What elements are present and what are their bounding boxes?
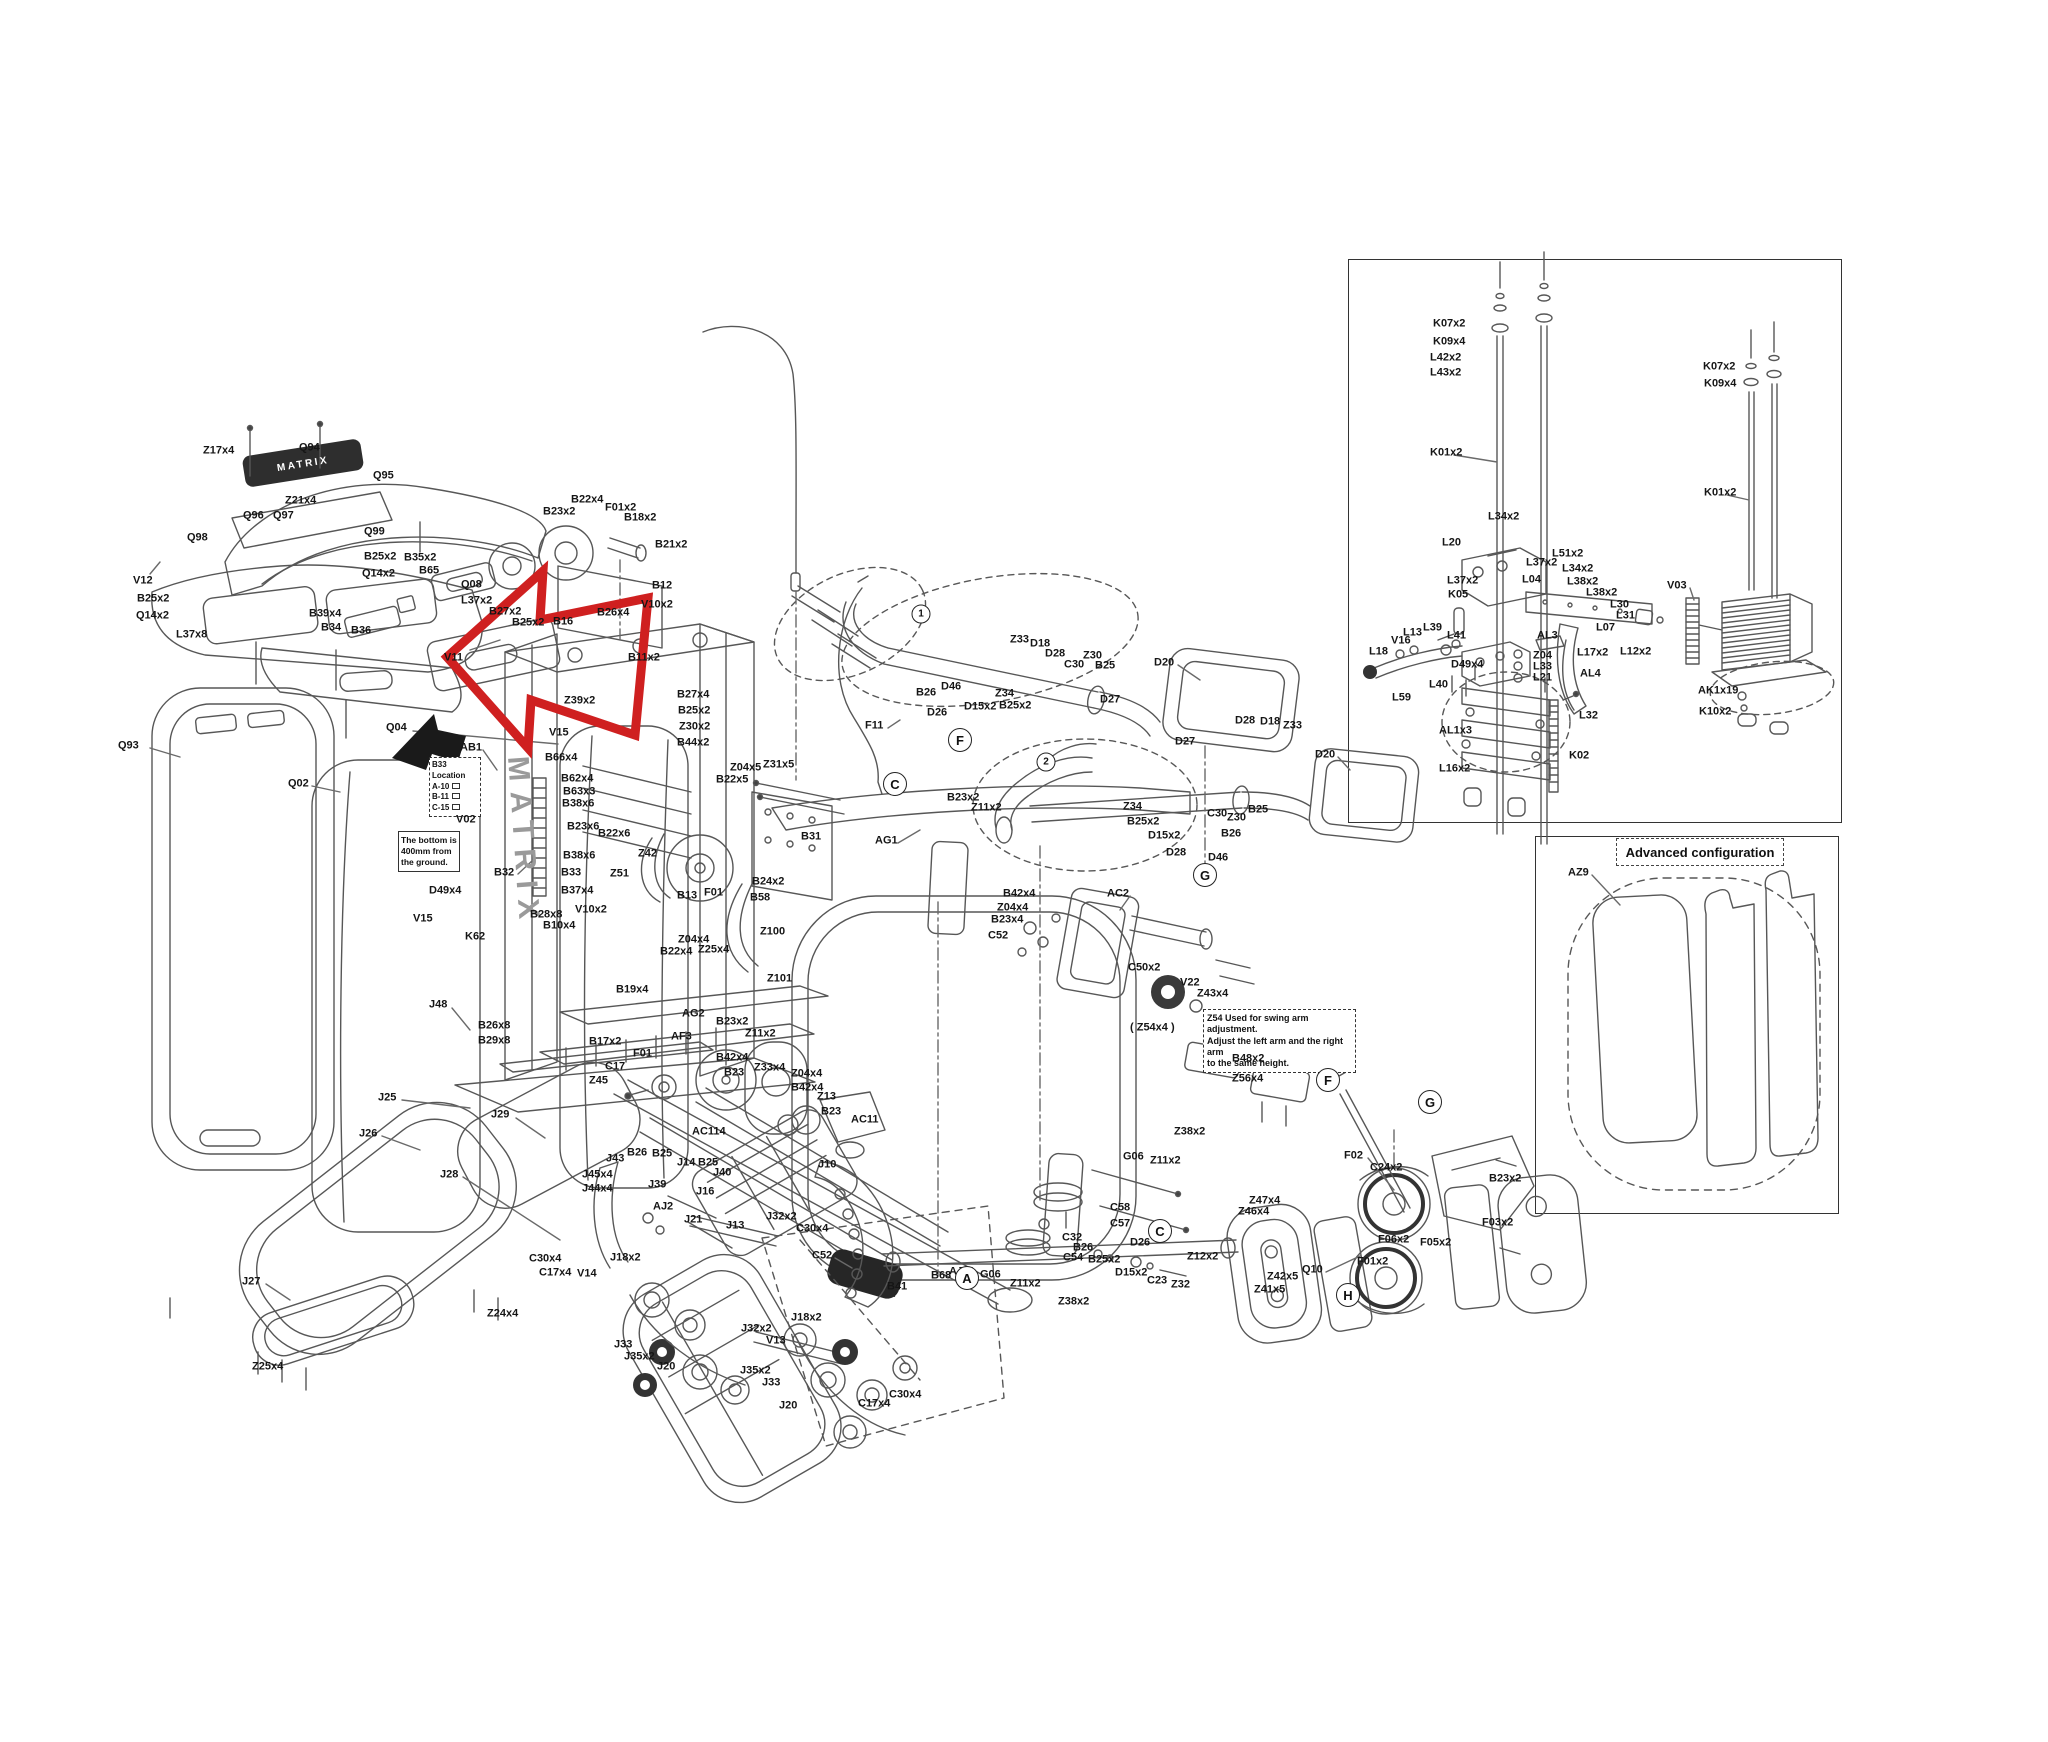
part-label: Z33x4: [754, 1063, 785, 1074]
part-label: B26: [627, 1148, 647, 1159]
part-label: D15x2: [1148, 831, 1180, 842]
part-label: L32: [1579, 711, 1598, 722]
part-label: V12: [133, 576, 153, 587]
part-label: F01: [704, 888, 723, 899]
part-label: C54: [1063, 1253, 1083, 1264]
part-label: Z42: [638, 849, 657, 860]
part-label: AL1x3: [1439, 726, 1472, 737]
part-label: Z13: [817, 1092, 836, 1103]
part-label: V02: [456, 815, 476, 826]
part-label: Z32: [1171, 1280, 1190, 1291]
part-label: L07: [1596, 623, 1615, 634]
part-label: D49x4: [1451, 660, 1483, 671]
part-label: AJ2: [653, 1202, 673, 1213]
part-label: C50x2: [1128, 963, 1160, 974]
part-label: Z17x4: [203, 446, 234, 457]
part-label: Z30x2: [679, 722, 710, 733]
part-label: Z45: [589, 1076, 608, 1087]
part-label: G06: [1123, 1152, 1144, 1163]
part-label: Q95: [373, 471, 394, 482]
part-label: Z11x2: [1010, 1279, 1041, 1290]
part-label: L40: [1429, 680, 1448, 691]
part-label: B26: [916, 688, 936, 699]
part-label: J35x2: [740, 1366, 771, 1377]
part-label: K01x2: [1704, 488, 1736, 499]
part-label: B42x4: [716, 1053, 748, 1064]
part-label: Z11x2: [745, 1029, 776, 1040]
part-label: AL4: [1580, 669, 1601, 680]
part-label: J35x2: [624, 1352, 655, 1363]
part-label: J48: [429, 1000, 447, 1011]
part-label: J18x2: [610, 1253, 641, 1264]
part-label: B37x4: [561, 886, 593, 897]
part-label: D15x2: [964, 702, 996, 713]
part-label: B23x4: [991, 915, 1023, 926]
part-label: J20: [657, 1362, 675, 1373]
part-label: K07x2: [1433, 319, 1465, 330]
section-marker: A: [955, 1266, 979, 1290]
part-label: Z34: [1123, 802, 1142, 813]
part-label: Z38x2: [1058, 1297, 1089, 1308]
part-label: B22x5: [716, 775, 748, 786]
part-label: Q04: [386, 723, 407, 734]
part-label: D20: [1154, 658, 1174, 669]
part-label: C17: [605, 1062, 625, 1073]
part-label: J20: [779, 1401, 797, 1412]
part-label: L21: [1533, 673, 1552, 684]
part-label: B25x2: [1088, 1255, 1120, 1266]
part-label: L42x2: [1430, 353, 1461, 364]
part-label: B39x4: [309, 609, 341, 620]
part-label: C57: [1110, 1219, 1130, 1230]
part-label: B22x6: [598, 829, 630, 840]
part-label: Z101: [767, 974, 792, 985]
part-label: D26: [1130, 1238, 1150, 1249]
part-label: Z100: [760, 927, 785, 938]
part-label: B26x4: [597, 608, 629, 619]
part-label: L41: [1447, 631, 1466, 642]
part-label: B33: [561, 868, 581, 879]
part-label: D28: [1235, 716, 1255, 727]
part-label: C17x4: [539, 1268, 571, 1279]
part-label: J45x4: [582, 1170, 613, 1181]
part-label: ( Z54x4 ): [1130, 1023, 1175, 1034]
part-label: L37x8: [176, 630, 207, 641]
part-label: J44x4: [582, 1184, 613, 1195]
part-label: Z04x5: [730, 763, 761, 774]
part-label: Z41x5: [1254, 1285, 1285, 1296]
part-label: Q08: [461, 580, 482, 591]
part-label: V10x2: [575, 905, 607, 916]
part-label: D20: [1315, 750, 1335, 761]
part-label: AC114: [692, 1127, 726, 1138]
part-label: J32x2: [766, 1212, 797, 1223]
part-label: AB1: [460, 743, 482, 754]
part-label: B22x4: [660, 947, 692, 958]
part-label: J43: [606, 1154, 624, 1165]
diagram-canvas: MATRIX MATRIX B33 Location A-10 B-11 C-1…: [0, 0, 2048, 1742]
part-label: C30: [1064, 660, 1084, 671]
part-label: D46: [1208, 853, 1228, 864]
part-label: B22x4: [571, 495, 603, 506]
part-label: L38x2: [1586, 588, 1617, 599]
part-label: L16x2: [1439, 764, 1470, 775]
part-label: Q14x2: [136, 611, 169, 622]
part-label: L37x2: [1447, 576, 1478, 587]
part-label: B11x2: [628, 653, 660, 664]
part-label: Z56x4: [1232, 1074, 1263, 1085]
part-label: Z12x2: [1187, 1252, 1218, 1263]
part-label: J32x2: [741, 1324, 772, 1335]
part-label: B25: [1248, 805, 1268, 816]
part-label: L37x2: [461, 596, 492, 607]
part-label: Z51: [610, 869, 629, 880]
part-label: L59: [1392, 693, 1411, 704]
part-label: B24x2: [752, 877, 784, 888]
part-label: C30x4: [889, 1390, 921, 1401]
part-label: D27: [1175, 737, 1195, 748]
part-label: J14: [677, 1158, 695, 1169]
part-label: B10x4: [543, 921, 575, 932]
section-marker: C: [1148, 1219, 1172, 1243]
part-label: B25x2: [1127, 817, 1159, 828]
part-label: F02: [1344, 1151, 1363, 1162]
part-label: AC2: [1107, 889, 1129, 900]
part-label: D28: [1166, 848, 1186, 859]
part-label: Z25x4: [698, 945, 729, 956]
part-label: B23x2: [1489, 1174, 1521, 1185]
part-label: B18x2: [624, 513, 656, 524]
part-label: C52: [812, 1251, 832, 1262]
part-label: Z42x5: [1267, 1272, 1298, 1283]
part-label: B27x4: [677, 690, 709, 701]
section-marker: 2: [1037, 753, 1056, 772]
part-label: B25: [1095, 661, 1115, 672]
part-label: L12x2: [1620, 647, 1651, 658]
part-label: B44x2: [677, 738, 709, 749]
part-label: B23: [724, 1068, 744, 1079]
part-label: L04: [1522, 575, 1541, 586]
part-label: L17x2: [1577, 648, 1608, 659]
part-label: B58: [750, 893, 770, 904]
part-label: Q02: [288, 779, 309, 790]
part-label: C30x4: [529, 1254, 561, 1265]
part-label: C58: [1110, 1203, 1130, 1214]
part-label: Q96: [243, 511, 264, 522]
part-label: Z43x4: [1197, 989, 1228, 1000]
part-label: J18x2: [791, 1313, 822, 1324]
part-label: Z31x5: [763, 760, 794, 771]
part-label: B62x4: [561, 774, 593, 785]
part-label: V11: [444, 653, 463, 664]
part-label: L31: [1616, 611, 1635, 622]
part-label: B13: [677, 891, 697, 902]
part-label: J33: [762, 1378, 780, 1389]
part-label: J28: [440, 1170, 458, 1181]
part-label: F05x2: [1420, 1238, 1451, 1249]
part-label: K09x4: [1704, 379, 1736, 390]
part-label: B26x8: [478, 1021, 510, 1032]
part-label: Z21x4: [285, 496, 316, 507]
part-label: B38x6: [563, 851, 595, 862]
part-label: V16: [1391, 636, 1411, 647]
part-label: B23: [821, 1107, 841, 1118]
part-label: F06x2: [1378, 1235, 1409, 1246]
part-label: F03x2: [1482, 1218, 1513, 1229]
part-label: L43x2: [1430, 368, 1461, 379]
part-label: Z39x2: [564, 696, 595, 707]
part-label: L34x2: [1562, 564, 1593, 575]
part-label: V13: [766, 1336, 786, 1347]
part-label: AK1x19: [1698, 686, 1738, 697]
part-label: B35x2: [404, 553, 436, 564]
part-label: V15: [413, 914, 433, 925]
part-label: J26: [359, 1129, 377, 1140]
part-label: L39: [1423, 623, 1442, 634]
part-label: K07x2: [1703, 362, 1735, 373]
part-label: B42x4: [1003, 889, 1035, 900]
part-label: B34: [321, 623, 341, 634]
part-label: V03: [1667, 581, 1687, 592]
section-marker: G: [1193, 863, 1217, 887]
part-label: B25x2: [999, 701, 1031, 712]
part-label: L34x2: [1488, 512, 1519, 523]
part-label: B23x2: [716, 1017, 748, 1028]
part-label: B19x4: [616, 985, 648, 996]
part-label: B25x2: [364, 552, 396, 563]
part-label: V15: [549, 728, 569, 739]
part-label: B16: [553, 617, 573, 628]
part-label: K62: [465, 932, 485, 943]
part-label: AC11: [851, 1115, 879, 1126]
part-label: L18: [1369, 647, 1388, 658]
section-marker: 1: [912, 605, 931, 624]
part-label: B41: [887, 1282, 907, 1293]
part-label: AG2: [682, 1009, 705, 1020]
part-label: K10x2: [1699, 707, 1731, 718]
part-label: B25x2: [512, 618, 544, 629]
part-label: C24x2: [1370, 1163, 1402, 1174]
part-label: Q98: [187, 533, 208, 544]
part-label: B17x2: [589, 1037, 621, 1048]
part-label: J13: [726, 1221, 744, 1232]
part-label: Z04x4: [997, 903, 1028, 914]
part-label: J33: [614, 1340, 632, 1351]
part-label: K05: [1448, 590, 1468, 601]
part-label: B25x2: [137, 594, 169, 605]
part-label: J29: [491, 1110, 509, 1121]
part-label: L20: [1442, 538, 1461, 549]
part-label: F01: [633, 1049, 652, 1060]
part-label: F01x2: [1357, 1257, 1388, 1268]
part-label: B31: [801, 832, 821, 843]
part-label: Z11x2: [1150, 1156, 1181, 1167]
part-label: K01x2: [1430, 448, 1462, 459]
part-label: D26: [927, 708, 947, 719]
part-label: D28: [1045, 649, 1065, 660]
part-label: B26: [1221, 829, 1241, 840]
part-label: D27: [1100, 695, 1120, 706]
part-label: C30: [1207, 809, 1227, 820]
part-label: Z11x2: [971, 803, 1002, 814]
part-label: B23x2: [543, 507, 575, 518]
part-label: B25x2: [678, 706, 710, 717]
part-label: AZ9: [1568, 868, 1589, 879]
part-label: D49x4: [429, 886, 461, 897]
part-label: Z24x4: [487, 1309, 518, 1320]
part-label: Z30: [1227, 813, 1246, 824]
part-label: D46: [941, 682, 961, 693]
part-label: J25: [378, 1093, 396, 1104]
part-label: Q94: [299, 443, 320, 454]
part-label: F11: [865, 721, 883, 732]
part-label: B29x8: [478, 1036, 510, 1047]
part-label: B32: [494, 868, 514, 879]
part-label: V14: [577, 1269, 597, 1280]
part-label: B21x2: [655, 540, 687, 551]
part-labels-layer: Z17x4Q94Q95Z21x4Q96Q97Q98Q99B25x2Q14x2B3…: [0, 0, 2048, 1742]
part-label: B48x2: [1232, 1054, 1264, 1065]
section-marker: C: [883, 772, 907, 796]
part-label: K02: [1569, 751, 1589, 762]
section-marker: H: [1336, 1283, 1360, 1307]
part-label: Z38x2: [1174, 1127, 1205, 1138]
part-label: B66x4: [545, 753, 577, 764]
part-label: Z33: [1283, 721, 1302, 732]
part-label: Q99: [364, 527, 385, 538]
part-label: Z46x4: [1238, 1207, 1269, 1218]
part-label: Z04x4: [791, 1069, 822, 1080]
part-label: J16: [696, 1187, 714, 1198]
part-label: Z25x4: [252, 1362, 283, 1373]
part-label: B12: [652, 581, 672, 592]
part-label: J27: [242, 1277, 260, 1288]
part-label: AF3: [671, 1032, 692, 1043]
part-label: V10x2: [641, 600, 673, 611]
part-label: Z33: [1010, 635, 1029, 646]
part-label: B25: [652, 1149, 672, 1160]
part-label: B65: [419, 566, 439, 577]
section-marker: F: [1316, 1068, 1340, 1092]
part-label: Q14x2: [362, 569, 395, 580]
part-label: AG1: [875, 836, 898, 847]
part-label: J39: [648, 1180, 666, 1191]
part-label: Q93: [118, 741, 139, 752]
part-label: B23x6: [567, 822, 599, 833]
part-label: K09x4: [1433, 337, 1465, 348]
part-label: AL3: [1537, 631, 1558, 642]
part-label: D18: [1260, 717, 1280, 728]
section-marker: G: [1418, 1090, 1442, 1114]
part-label: D15x2: [1115, 1268, 1147, 1279]
part-label: G06: [980, 1270, 1001, 1281]
part-label: J21: [684, 1215, 702, 1226]
part-label: C23: [1147, 1276, 1167, 1287]
part-label: C52: [988, 931, 1008, 942]
part-label: J40: [713, 1168, 731, 1179]
part-label: B38x6: [562, 799, 594, 810]
part-label: Q97: [273, 511, 294, 522]
part-label: J10: [818, 1160, 836, 1171]
part-label: C30x4: [796, 1224, 828, 1235]
part-label: L51x2: [1552, 549, 1583, 560]
part-label: Q10: [1302, 1265, 1323, 1276]
part-label: B63x3: [563, 787, 595, 798]
section-marker: F: [948, 728, 972, 752]
part-label: Z34: [995, 689, 1014, 700]
part-label: C17x4: [858, 1399, 890, 1410]
part-label: B36: [351, 626, 371, 637]
